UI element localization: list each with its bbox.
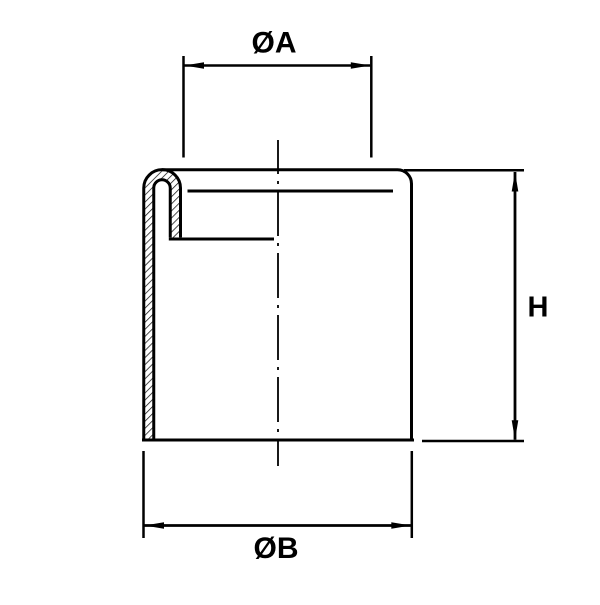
svg-text:ØB: ØB: [254, 532, 299, 565]
svg-text:ØA: ØA: [252, 27, 297, 60]
svg-text:H: H: [528, 292, 549, 324]
